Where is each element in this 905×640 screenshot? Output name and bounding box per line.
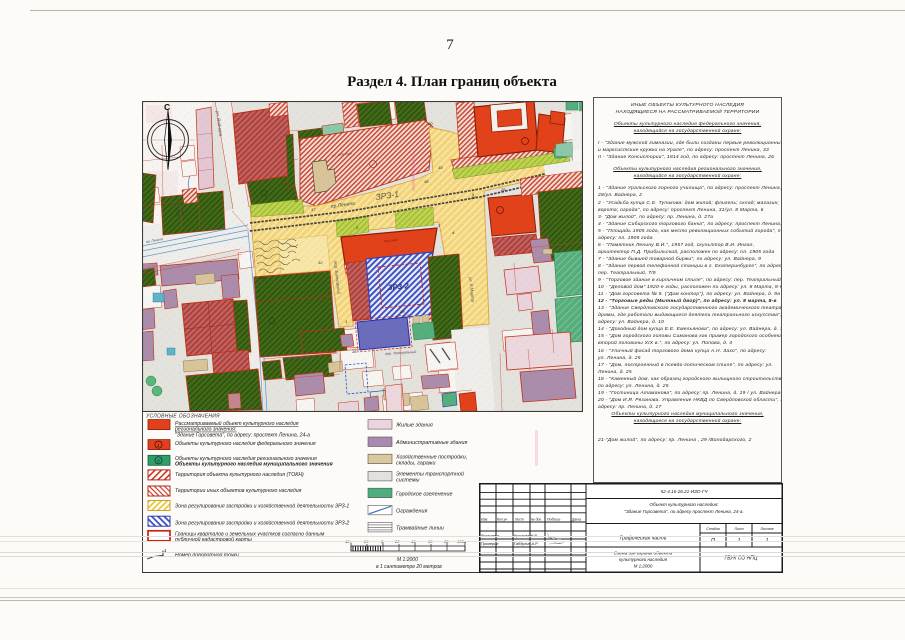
svg-text:№ док.: № док. <box>531 518 542 522</box>
svg-text:Трамвайные линии: Трамвайные линии <box>396 525 444 532</box>
svg-text:Листов: Листов <box>759 527 773 531</box>
svg-text:Лист: Лист <box>514 518 524 522</box>
svg-text:Жилые здания: Жилые здания <box>395 423 433 429</box>
svg-text:Изм.: Изм. <box>481 518 488 522</box>
svg-text:Территория объекта культурного: Территория объекта культурного наследия … <box>175 472 304 478</box>
svg-text:в 1 сантиметре 20 метров: в 1 сантиметре 20 метров <box>376 564 442 570</box>
svg-text:Зона регулирования застройки и: Зона регулирования застройки и хозяйстве… <box>175 520 349 527</box>
svg-text:52-4.16-26.21-ИЗО-ГЧ: 52-4.16-26.21-ИЗО-ГЧ <box>661 489 709 494</box>
svg-text:Объекты культурного наследия: Объекты культурного наследия федеральног… <box>175 441 316 447</box>
svg-text:Территории иных объектов культ: Территории иных объектов культурного нас… <box>175 488 302 494</box>
svg-text:культурного наследия: культурного наследия <box>619 557 668 562</box>
svg-text:Городское озеленение: Городское озеленение <box>396 492 453 498</box>
svg-text:Объект культурного наследия:: Объект культурного наследия: <box>649 502 719 507</box>
svg-text:1: 1 <box>157 443 160 449</box>
svg-text:"Здание Горсовета", по адресу: "Здание Горсовета", по адресу проспект Л… <box>624 509 744 514</box>
svg-text:Дата: Дата <box>571 518 581 522</box>
svg-text:9: 9 <box>157 459 160 465</box>
svg-text:Подпись: Подпись <box>547 518 561 522</box>
svg-text:системы: системы <box>396 478 420 484</box>
svg-text:Габдулин А.Р.: Габдулин А.Р. <box>514 542 538 546</box>
svg-text:Элементы транспортной: Элементы транспортной <box>396 471 464 478</box>
svg-text:М 1:2000: М 1:2000 <box>397 557 418 563</box>
svg-text:Хозяйственные постройки,: Хозяйственные постройки, <box>395 454 467 461</box>
svg-text:склады, гаражи: склады, гаражи <box>396 461 436 467</box>
svg-text:Кол.уч: Кол.уч <box>497 518 507 522</box>
svg-text:Ограждения: Ограждения <box>396 509 427 515</box>
svg-text:Зона регулирования застройки и: Зона регулирования застройки и хозяйстве… <box>175 503 349 510</box>
svg-text:Лист: Лист <box>733 527 743 531</box>
svg-text:Объекты культурного наследия: Объекты культурного наследия муниципальн… <box>175 461 333 468</box>
svg-text:"Здание Горсовета", по адресу:: "Здание Горсовета", по адресу: проспект … <box>175 433 310 439</box>
svg-text:Проверил: Проверил <box>481 542 499 546</box>
svg-text:Стадия: Стадия <box>706 527 720 531</box>
svg-text:УСЛОВНЫЕ ОБОЗНАЧЕНИЯ: УСЛОВНЫЕ ОБОЗНАЧЕНИЯ <box>146 414 220 420</box>
svg-text:Административные здания: Административные здания <box>395 440 467 446</box>
svg-text:1: 1 <box>164 548 167 554</box>
svg-text:М 1:2000: М 1:2000 <box>634 564 653 569</box>
